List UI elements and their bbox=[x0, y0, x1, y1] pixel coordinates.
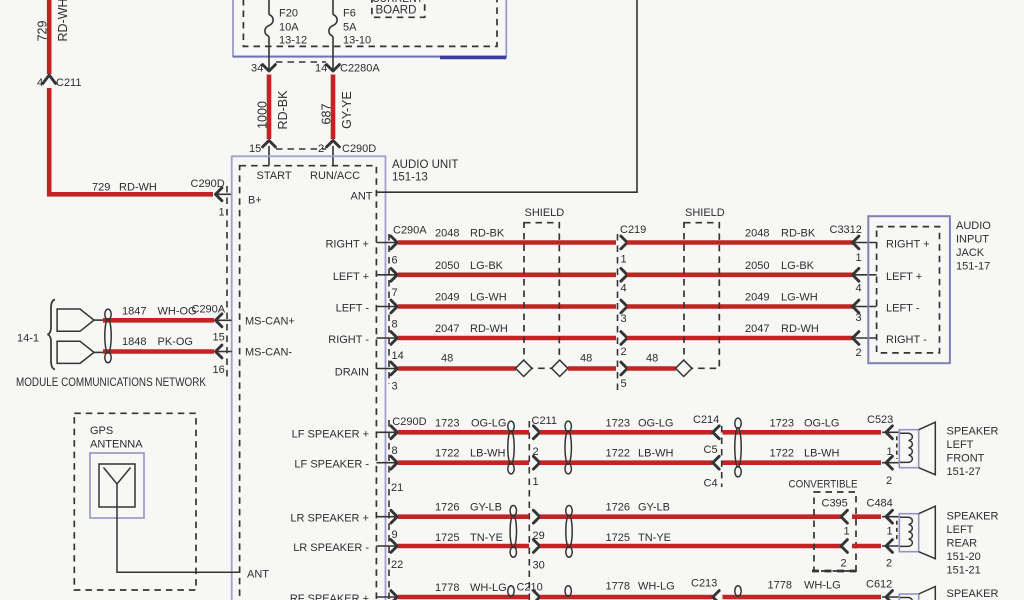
svg-text:LB-WH: LB-WH bbox=[638, 448, 674, 460]
svg-text:ANT: ANT bbox=[351, 191, 373, 203]
svg-text:RD-BK: RD-BK bbox=[470, 228, 505, 240]
svg-text:OG-LG: OG-LG bbox=[804, 418, 839, 430]
svg-text:151-17: 151-17 bbox=[956, 261, 990, 273]
svg-text:687: 687 bbox=[320, 104, 334, 125]
svg-text:REAR: REAR bbox=[947, 538, 978, 550]
svg-text:LB-WH: LB-WH bbox=[470, 448, 506, 460]
svg-text:1848: 1848 bbox=[122, 336, 146, 348]
svg-text:1723: 1723 bbox=[770, 418, 794, 430]
svg-text:1: 1 bbox=[887, 526, 893, 538]
svg-text:BOARD: BOARD bbox=[376, 5, 417, 17]
svg-text:LR SPEAKER +: LR SPEAKER + bbox=[290, 513, 369, 525]
svg-text:48: 48 bbox=[646, 353, 658, 365]
svg-text:30: 30 bbox=[533, 560, 545, 572]
svg-text:9: 9 bbox=[392, 529, 398, 541]
svg-text:LF SPEAKER +: LF SPEAKER + bbox=[292, 428, 369, 440]
svg-text:LEFT: LEFT bbox=[947, 439, 974, 451]
svg-text:C211: C211 bbox=[56, 77, 81, 89]
svg-text:MODULE COMMUNICATIONS NETWORK: MODULE COMMUNICATIONS NETWORK bbox=[16, 375, 206, 389]
svg-text:RIGHT -: RIGHT - bbox=[328, 334, 369, 346]
svg-text:C395: C395 bbox=[822, 498, 848, 510]
svg-text:C484: C484 bbox=[867, 498, 893, 510]
svg-text:WH-LG: WH-LG bbox=[804, 580, 841, 592]
svg-text:C4: C4 bbox=[704, 478, 718, 490]
svg-text:1778: 1778 bbox=[606, 581, 630, 593]
svg-text:RD-WH: RD-WH bbox=[781, 323, 819, 335]
svg-text:WH-LG: WH-LG bbox=[638, 581, 675, 593]
svg-text:AUDIO: AUDIO bbox=[956, 220, 991, 232]
svg-text:C612: C612 bbox=[866, 579, 892, 591]
svg-text:15: 15 bbox=[213, 332, 225, 344]
svg-text:LEFT -: LEFT - bbox=[886, 303, 920, 315]
svg-text:10A: 10A bbox=[279, 22, 299, 34]
svg-text:3: 3 bbox=[856, 312, 862, 324]
svg-text:1726: 1726 bbox=[606, 502, 630, 514]
svg-text:1723: 1723 bbox=[435, 418, 459, 430]
svg-text:1: 1 bbox=[533, 476, 539, 488]
svg-text:RD-BK: RD-BK bbox=[781, 228, 816, 240]
svg-text:F20: F20 bbox=[279, 8, 298, 20]
svg-text:ANTENNA: ANTENNA bbox=[90, 439, 143, 451]
svg-text:RIGHT -: RIGHT - bbox=[886, 334, 927, 346]
svg-text:RF SPEAKER +: RF SPEAKER + bbox=[290, 593, 369, 600]
svg-text:SHIELD: SHIELD bbox=[685, 207, 725, 219]
svg-text:SPEAKER: SPEAKER bbox=[947, 426, 999, 438]
svg-text:2048: 2048 bbox=[435, 228, 459, 240]
svg-text:151-27: 151-27 bbox=[947, 466, 981, 478]
svg-text:8: 8 bbox=[392, 319, 398, 331]
svg-text:GY-YE: GY-YE bbox=[340, 91, 354, 129]
svg-text:C523: C523 bbox=[867, 414, 893, 426]
svg-text:PK-OG: PK-OG bbox=[158, 336, 193, 348]
svg-text:JACK: JACK bbox=[956, 247, 985, 259]
svg-text:151-20: 151-20 bbox=[947, 551, 981, 563]
svg-text:13-10: 13-10 bbox=[343, 35, 371, 47]
svg-text:2050: 2050 bbox=[435, 260, 459, 272]
svg-text:INPUT: INPUT bbox=[956, 234, 989, 246]
svg-text:1722: 1722 bbox=[606, 448, 630, 460]
svg-text:SPEAKER: SPEAKER bbox=[947, 511, 999, 523]
svg-text:4: 4 bbox=[37, 77, 43, 89]
svg-text:1778: 1778 bbox=[768, 580, 792, 592]
svg-text:1847: 1847 bbox=[122, 306, 146, 318]
svg-text:RIGHT +: RIGHT + bbox=[886, 239, 930, 251]
svg-text:29: 29 bbox=[533, 530, 545, 542]
svg-text:22: 22 bbox=[391, 559, 403, 571]
svg-text:151-21: 151-21 bbox=[947, 565, 981, 577]
svg-text:1722: 1722 bbox=[770, 448, 794, 460]
svg-text:2: 2 bbox=[841, 558, 847, 570]
svg-text:LG-WH: LG-WH bbox=[781, 292, 818, 304]
svg-text:4: 4 bbox=[856, 283, 862, 295]
svg-text:LF SPEAKER -: LF SPEAKER - bbox=[294, 459, 369, 471]
svg-text:48: 48 bbox=[580, 353, 592, 365]
svg-text:16: 16 bbox=[213, 364, 225, 376]
svg-text:LG-WH: LG-WH bbox=[470, 292, 507, 304]
svg-text:MS-CAN+: MS-CAN+ bbox=[245, 316, 295, 328]
svg-text:729: 729 bbox=[36, 21, 50, 42]
svg-text:1: 1 bbox=[219, 207, 225, 219]
svg-text:13-12: 13-12 bbox=[279, 35, 307, 47]
svg-text:C210: C210 bbox=[517, 582, 543, 594]
svg-text:3: 3 bbox=[392, 381, 398, 393]
svg-text:5: 5 bbox=[621, 378, 627, 390]
svg-text:AUDIO UNIT: AUDIO UNIT bbox=[392, 159, 458, 171]
svg-text:2049: 2049 bbox=[435, 292, 459, 304]
svg-text:LEFT -: LEFT - bbox=[336, 303, 370, 315]
svg-text:FRONT: FRONT bbox=[947, 453, 985, 465]
svg-text:RIGHT +: RIGHT + bbox=[325, 239, 369, 251]
svg-text:729: 729 bbox=[92, 182, 110, 194]
svg-text:1: 1 bbox=[844, 526, 850, 538]
svg-text:2: 2 bbox=[886, 475, 892, 487]
svg-text:2050: 2050 bbox=[745, 260, 769, 272]
svg-text:START: START bbox=[257, 170, 292, 182]
svg-text:F6: F6 bbox=[343, 8, 356, 20]
svg-text:C290D: C290D bbox=[342, 143, 376, 155]
svg-text:C219: C219 bbox=[620, 224, 646, 236]
svg-text:1722: 1722 bbox=[435, 448, 459, 460]
svg-text:14: 14 bbox=[392, 350, 404, 362]
svg-text:3: 3 bbox=[621, 313, 627, 325]
svg-text:DRAIN: DRAIN bbox=[335, 367, 369, 379]
svg-text:ANT: ANT bbox=[247, 569, 269, 581]
svg-text:RUN/ACC: RUN/ACC bbox=[310, 170, 360, 182]
svg-text:151-13: 151-13 bbox=[392, 172, 428, 184]
svg-text:48: 48 bbox=[441, 353, 453, 365]
svg-text:C214: C214 bbox=[693, 414, 719, 426]
svg-text:LR SPEAKER -: LR SPEAKER - bbox=[293, 542, 369, 554]
svg-text:C290A: C290A bbox=[393, 225, 427, 237]
svg-text:RD-WH: RD-WH bbox=[119, 182, 157, 194]
svg-text:1725: 1725 bbox=[606, 532, 630, 544]
svg-text:1000: 1000 bbox=[256, 101, 270, 129]
svg-text:LG-BK: LG-BK bbox=[470, 260, 504, 272]
svg-text:7: 7 bbox=[392, 287, 398, 299]
svg-text:RD-WH: RD-WH bbox=[470, 323, 508, 335]
svg-text:LEFT +: LEFT + bbox=[333, 271, 369, 283]
svg-text:LG-BK: LG-BK bbox=[781, 260, 815, 272]
svg-text:WH-LG: WH-LG bbox=[470, 582, 507, 594]
svg-text:C213: C213 bbox=[691, 578, 717, 590]
svg-text:2049: 2049 bbox=[745, 292, 769, 304]
svg-text:C2280A: C2280A bbox=[340, 63, 380, 75]
svg-text:1: 1 bbox=[887, 446, 893, 458]
svg-text:OG-LG: OG-LG bbox=[471, 418, 506, 430]
svg-text:CONVERTIBLE: CONVERTIBLE bbox=[789, 479, 858, 491]
svg-text:2: 2 bbox=[533, 446, 539, 458]
svg-text:4: 4 bbox=[621, 283, 627, 295]
svg-text:GY-LB: GY-LB bbox=[470, 502, 502, 514]
svg-text:RD-BK: RD-BK bbox=[276, 90, 290, 130]
svg-text:8: 8 bbox=[392, 445, 398, 457]
svg-text:LEFT: LEFT bbox=[947, 524, 974, 536]
svg-text:SPEAKER: SPEAKER bbox=[947, 588, 999, 600]
svg-text:C211: C211 bbox=[532, 415, 557, 427]
svg-text:SHIELD: SHIELD bbox=[525, 207, 565, 219]
svg-text:1726: 1726 bbox=[435, 502, 459, 514]
svg-text:B+: B+ bbox=[248, 195, 262, 207]
svg-text:2: 2 bbox=[621, 346, 627, 358]
svg-text:RD-WH: RD-WH bbox=[56, 0, 70, 42]
svg-text:2047: 2047 bbox=[435, 323, 459, 335]
svg-text:2: 2 bbox=[318, 143, 324, 155]
svg-text:1723: 1723 bbox=[606, 418, 630, 430]
svg-text:C290D: C290D bbox=[392, 416, 426, 428]
svg-text:C5: C5 bbox=[704, 444, 718, 456]
svg-text:1725: 1725 bbox=[435, 532, 459, 544]
svg-text:2047: 2047 bbox=[745, 323, 769, 335]
svg-text:2048: 2048 bbox=[745, 228, 769, 240]
svg-text:1: 1 bbox=[621, 254, 627, 266]
svg-text:14: 14 bbox=[315, 63, 327, 75]
svg-text:6: 6 bbox=[392, 255, 398, 267]
svg-text:MS-CAN-: MS-CAN- bbox=[245, 347, 292, 359]
svg-text:TN-YE: TN-YE bbox=[470, 532, 503, 544]
svg-text:GPS: GPS bbox=[90, 425, 113, 437]
svg-text:GY-LB: GY-LB bbox=[638, 502, 670, 514]
svg-text:C3312: C3312 bbox=[830, 224, 862, 236]
svg-text:5A: 5A bbox=[343, 22, 357, 34]
svg-text:21: 21 bbox=[391, 482, 403, 494]
svg-text:15: 15 bbox=[249, 143, 261, 155]
svg-text:OG-LG: OG-LG bbox=[638, 418, 673, 430]
svg-text:2: 2 bbox=[886, 558, 892, 570]
svg-text:34: 34 bbox=[251, 63, 263, 75]
svg-text:1: 1 bbox=[856, 252, 862, 264]
svg-text:2: 2 bbox=[856, 347, 862, 359]
svg-text:LB-WH: LB-WH bbox=[804, 448, 840, 460]
svg-text:LEFT +: LEFT + bbox=[886, 271, 922, 283]
svg-text:14-1: 14-1 bbox=[17, 333, 39, 345]
svg-text:1778: 1778 bbox=[435, 582, 459, 594]
svg-text:TN-YE: TN-YE bbox=[638, 532, 671, 544]
